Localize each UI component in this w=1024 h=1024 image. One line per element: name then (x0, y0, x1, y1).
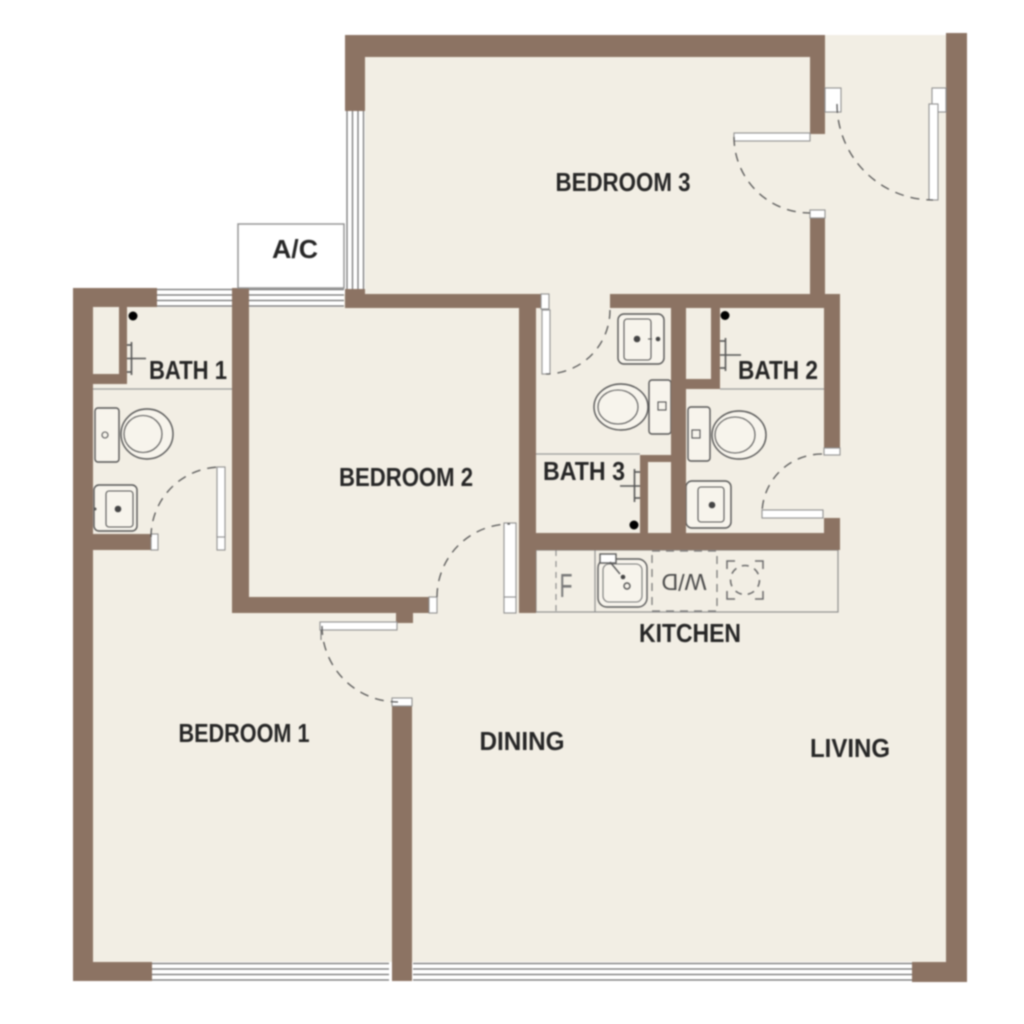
svg-text:KITCHEN: KITCHEN (639, 618, 741, 648)
svg-text:LIVING: LIVING (810, 733, 890, 763)
svg-text:W/D: W/D (662, 569, 707, 595)
svg-text:F: F (560, 567, 573, 604)
svg-text:BEDROOM 2: BEDROOM 2 (339, 462, 473, 492)
svg-text:BEDROOM 1: BEDROOM 1 (179, 718, 310, 748)
svg-text:DINING: DINING (480, 726, 565, 756)
svg-text:BATH 3: BATH 3 (543, 456, 625, 486)
svg-text:BATH 2: BATH 2 (738, 355, 818, 385)
svg-text:BATH 1: BATH 1 (149, 355, 227, 385)
svg-text:BEDROOM 3: BEDROOM 3 (556, 167, 691, 197)
svg-text:A/C: A/C (272, 234, 318, 264)
